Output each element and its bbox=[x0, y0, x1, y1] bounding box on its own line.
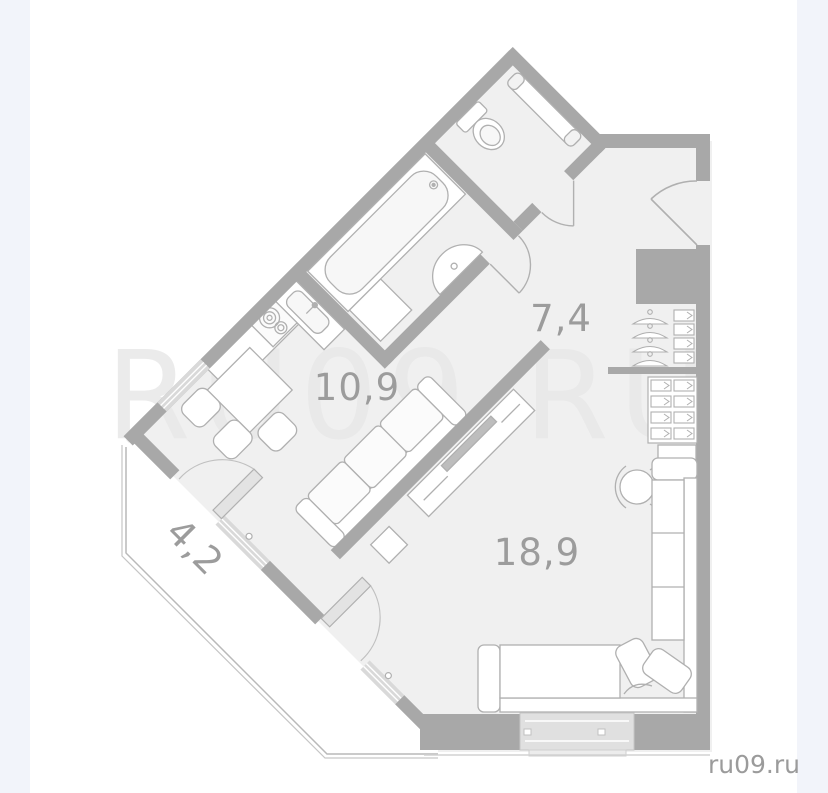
wall-top bbox=[597, 134, 710, 148]
shelf-box-icon bbox=[674, 396, 694, 407]
shelf-box-icon bbox=[674, 380, 694, 391]
shelf-box-icon bbox=[651, 428, 671, 439]
room-label-hallway: 7,4 bbox=[530, 297, 592, 340]
right-edge-strip bbox=[797, 0, 828, 793]
room-label-living: 18,9 bbox=[494, 531, 580, 574]
floor-plan-page: RU09.RU 4,2 bbox=[0, 0, 828, 793]
site-logo: ru09.ru bbox=[708, 750, 800, 779]
shelf-box-icon bbox=[651, 396, 671, 407]
wall-right bbox=[696, 245, 710, 750]
shaft-block bbox=[636, 249, 710, 304]
wall-right bbox=[696, 134, 710, 181]
shelf-box-icon bbox=[651, 380, 671, 391]
left-edge-strip bbox=[0, 0, 30, 793]
shelf-box-icon bbox=[674, 352, 694, 363]
shelf-box-icon bbox=[674, 338, 694, 349]
shelf-box-icon bbox=[674, 428, 694, 439]
shelf-box-icon bbox=[674, 324, 694, 335]
shelf-box-icon bbox=[651, 412, 671, 423]
wardrobe-divider bbox=[608, 367, 696, 374]
wardrobe-shelves bbox=[648, 377, 697, 443]
shelf-box-icon bbox=[674, 310, 694, 321]
shelf-box-icon bbox=[674, 412, 694, 423]
room-label-kitchen: 10,9 bbox=[314, 366, 400, 409]
floor-plan-svg: RU09.RU 4,2 bbox=[0, 0, 828, 793]
